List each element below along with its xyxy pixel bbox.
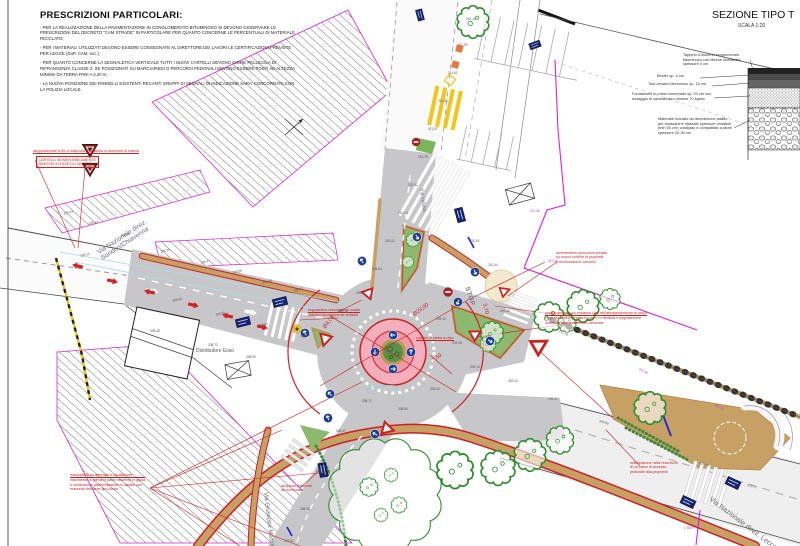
spot-elevation: 208.90 bbox=[246, 355, 256, 359]
red-annotation: lampione esistenteda ricollocare bbox=[281, 484, 312, 493]
section-layer-label: Materiale riciclato da demolizione adatt… bbox=[658, 117, 733, 136]
section-layer-label: Binder sp. 6 cm bbox=[657, 74, 702, 79]
temporary-sign-icon bbox=[293, 325, 301, 333]
spot-elevation: 208.84 bbox=[398, 407, 408, 411]
spot-elevation: 209.12 bbox=[436, 317, 446, 321]
no-entry-sign-icon bbox=[412, 138, 420, 146]
prescription-item: - PER QUANTO CONCERNE LA SEGNALETICA VER… bbox=[40, 60, 295, 77]
spot-elevation: 210.02 bbox=[385, 239, 395, 243]
spot-elevation: 207.91 bbox=[284, 539, 294, 543]
spot-elevation: 212.14 bbox=[466, 17, 476, 21]
spot-elevation: 209.64 bbox=[372, 267, 382, 271]
section-title: SEZIONE TIPO T bbox=[712, 9, 794, 21]
boundary-label: L 50/7 bbox=[684, 526, 694, 530]
spot-elevation: 209.86 bbox=[500, 309, 510, 313]
spot-elevation: 208.05 bbox=[300, 507, 310, 511]
spot-elevation: 210.79 bbox=[418, 155, 428, 159]
gas-station-label: Distributore Esso bbox=[196, 348, 234, 354]
prescription-item: - PER I MATERIALI UTILIZZATI DEVONO ESSE… bbox=[40, 45, 295, 57]
no-entry-sign-icon bbox=[444, 288, 453, 297]
section-scale: SCALA 1:20 bbox=[738, 23, 765, 29]
section-detail bbox=[700, 60, 800, 160]
spot-elevation: 210.52 bbox=[408, 183, 418, 187]
spot-elevation: 208.71 bbox=[362, 399, 372, 403]
keep-right-sign-icon bbox=[356, 255, 369, 268]
give-way-sign-icon bbox=[530, 334, 550, 355]
spot-elevation: 209.14 bbox=[470, 365, 480, 369]
prescription-item: - PER LA REALIZZAZIONE DELLA PAVIMENTAZI… bbox=[40, 25, 295, 42]
red-annotation: arretramento recinzione privatasu nuovo … bbox=[556, 251, 607, 264]
spot-elevation: 208.92 bbox=[430, 387, 440, 391]
spot-elevation: 210.61 bbox=[470, 239, 480, 243]
spot-elevation: 209.06 bbox=[452, 341, 462, 345]
red-annotation: marciapiedi da ampliare e riqualificare:… bbox=[70, 473, 145, 492]
spot-elevation: 208.72 bbox=[208, 343, 218, 347]
spot-elevation: 211.46 bbox=[530, 209, 540, 213]
spot-elevation: 208.45 bbox=[150, 329, 160, 333]
spot-elevation: 208.47 bbox=[336, 429, 346, 433]
red-annotation: da posizionare a 50 m dalla futura rotat… bbox=[33, 149, 139, 154]
red-annotation: realizzazione nella recinzionedi un varc… bbox=[630, 461, 678, 474]
red-annotation: posizionamento su entrambi i lati dell'a… bbox=[545, 311, 647, 325]
section-layer-label: Tout-venant bituminoso sp. 10 cm bbox=[648, 82, 712, 87]
spot-elevation: 209.24 bbox=[508, 379, 518, 383]
spot-elevation: 209.18 bbox=[338, 309, 348, 313]
spot-elevation: 209.47 bbox=[548, 397, 558, 401]
red-annotation: cordolo in pietra a raso bbox=[416, 336, 454, 341]
prescriptions-block: PRESCRIZIONI PARTICOLARI: - PER LA REALI… bbox=[40, 10, 295, 93]
spot-elevation: 211.02 bbox=[548, 259, 558, 263]
section-layer-label: Fondazione in misto cementato sp. 20 cm … bbox=[632, 92, 712, 101]
red-annotation: CARTELLI MOMENTANEAMENTERIMOSSI IN FASE … bbox=[36, 156, 99, 168]
spot-elevation: 209.31 bbox=[356, 291, 366, 295]
spot-elevation: 211.07 bbox=[428, 127, 438, 131]
section-layer-label: Tappeto d'usura in conglomerato bitumino… bbox=[683, 53, 749, 67]
panel-sign-icon bbox=[454, 207, 465, 223]
prescription-item: - LA NUOVA POSIZIONE DEI PANNELLI ESISTE… bbox=[40, 81, 295, 93]
prescriptions-title: PRESCRIZIONI PARTICOLARI: bbox=[40, 10, 295, 21]
panel-sign-icon bbox=[529, 40, 542, 50]
spot-elevation: 208.22 bbox=[316, 469, 326, 473]
spot-elevation: 210.38 bbox=[398, 211, 408, 215]
plan-sheet: PRESCRIZIONI PARTICOLARI: - PER LA REALI… bbox=[0, 0, 800, 546]
spot-elevation: 211.90 bbox=[458, 43, 468, 47]
spot-elevation: 211.62 bbox=[448, 71, 458, 75]
spot-elevation: 211.30 bbox=[438, 99, 448, 103]
keep-right-sign-icon bbox=[322, 412, 334, 424]
spot-elevation: 210.44 bbox=[488, 263, 498, 267]
